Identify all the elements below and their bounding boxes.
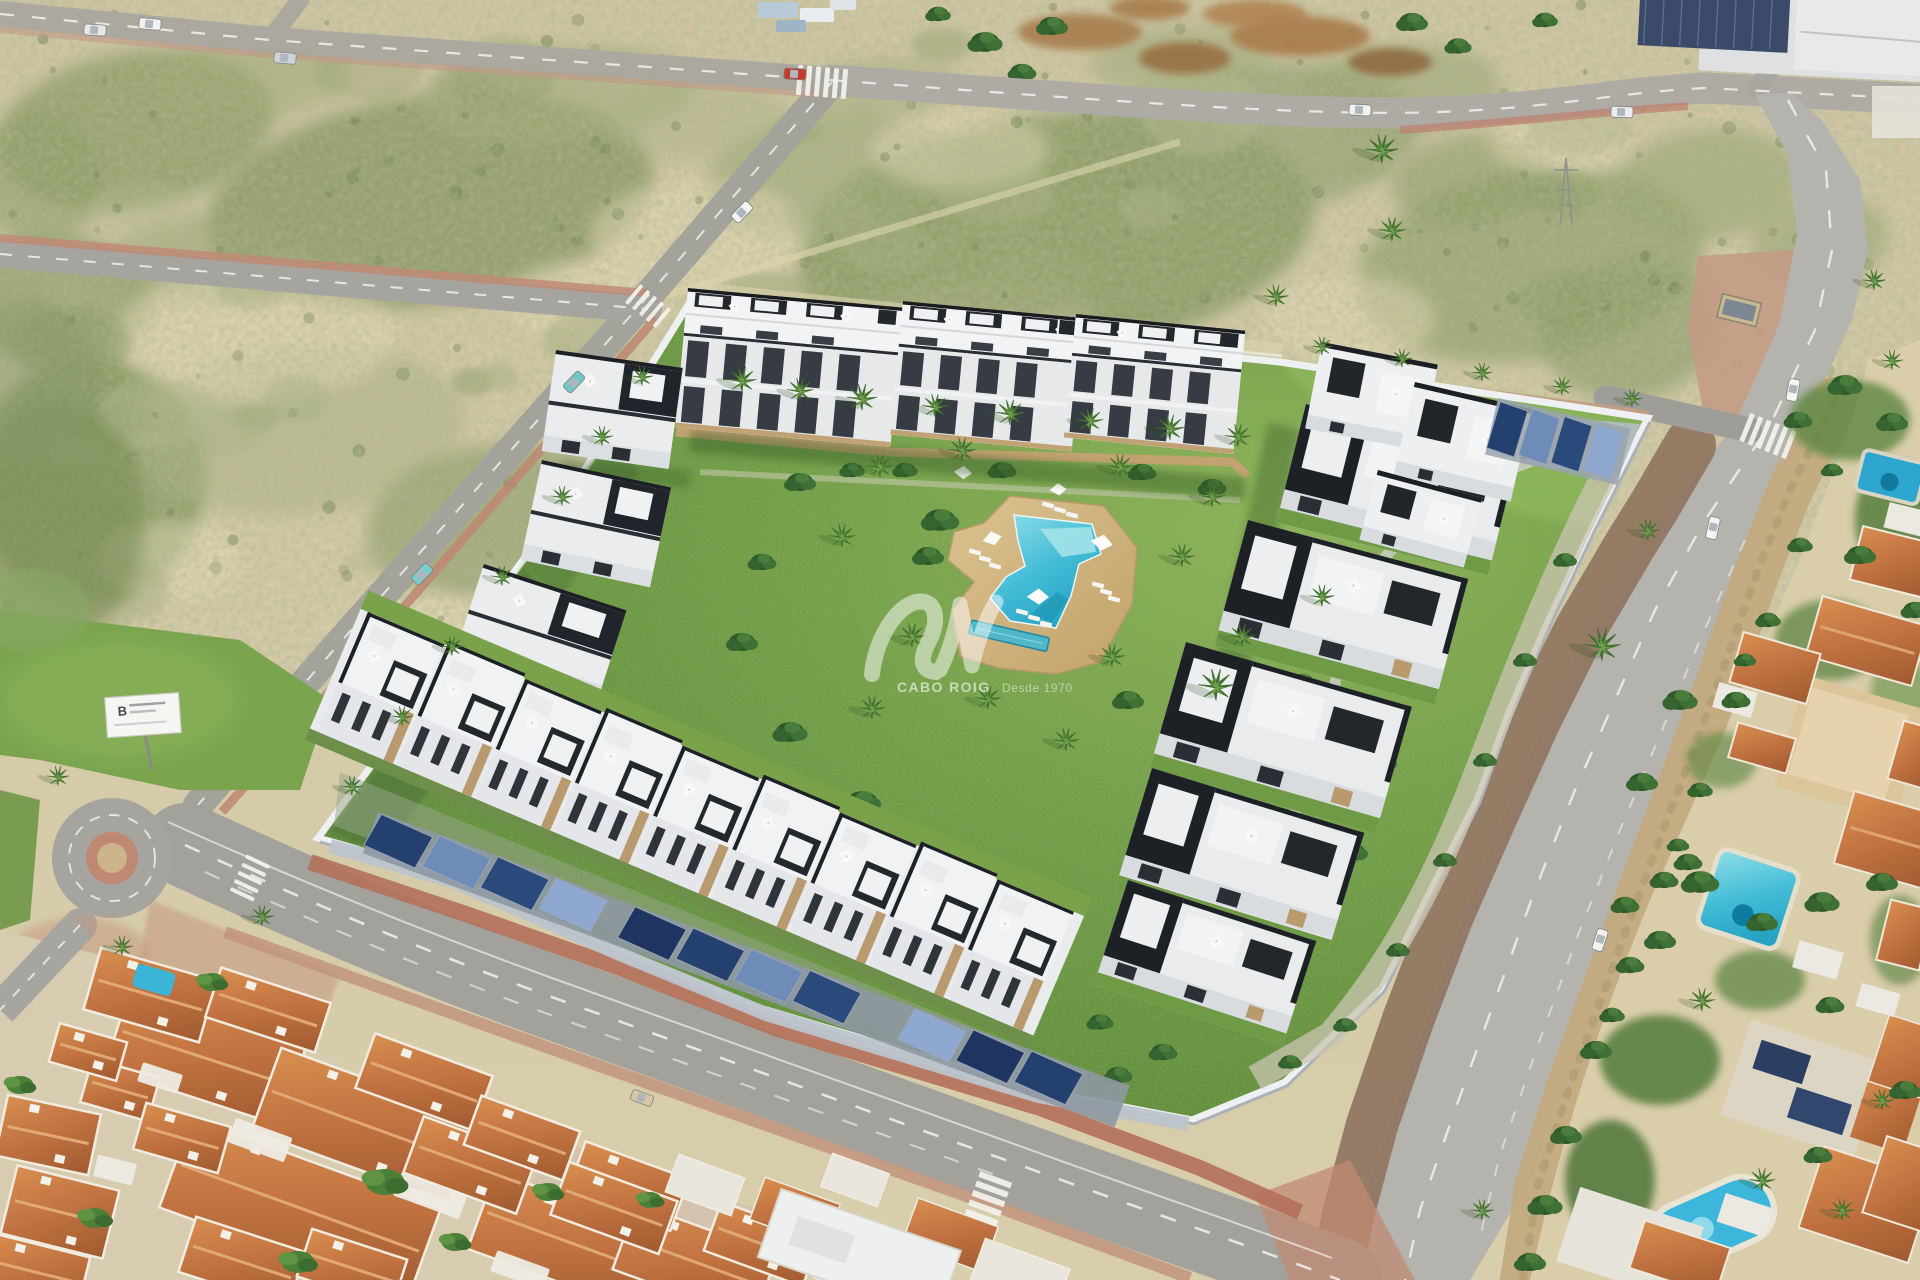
svg-text:Desde 1970: Desde 1970 (1002, 681, 1073, 695)
svg-text:CABO ROIG: CABO ROIG (897, 679, 991, 695)
svg-text:B: B (117, 703, 127, 719)
